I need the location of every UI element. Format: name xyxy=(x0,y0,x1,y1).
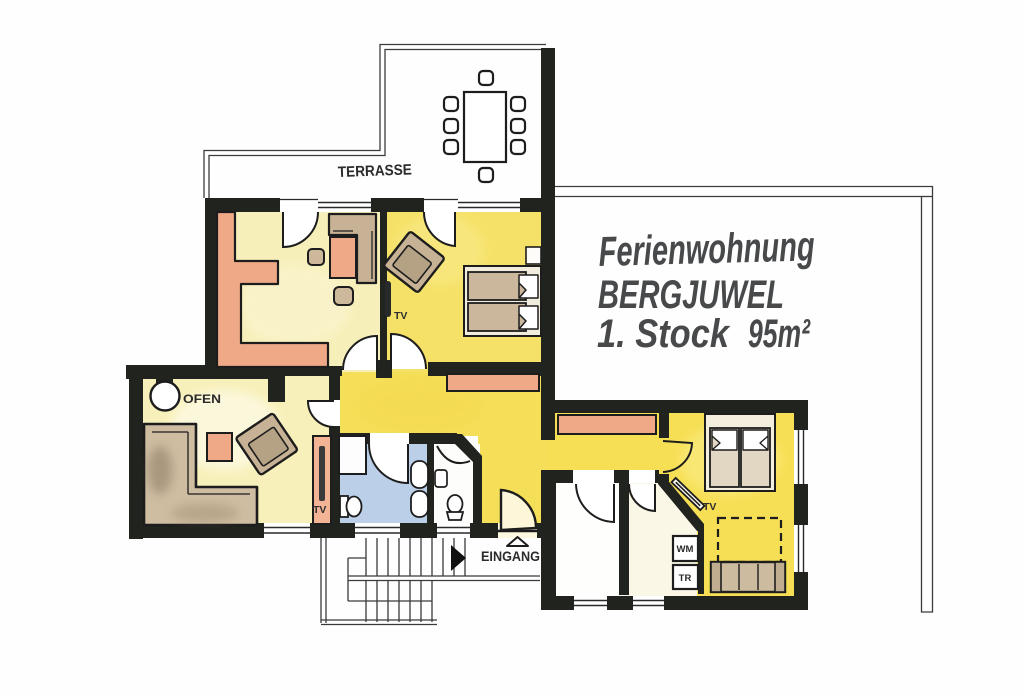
svg-text:EINGANG: EINGANG xyxy=(481,549,540,564)
svg-text:OFEN: OFEN xyxy=(183,394,221,406)
svg-text:95m²: 95m² xyxy=(748,312,811,356)
svg-text:TERRASSE: TERRASSE xyxy=(338,161,413,181)
svg-text:TR: TR xyxy=(679,573,692,584)
svg-text:1. Stock: 1. Stock xyxy=(597,312,731,356)
svg-text:Ferienwohnung: Ferienwohnung xyxy=(598,222,815,275)
svg-text:TV: TV xyxy=(394,310,407,322)
svg-text:BERGJUWEL: BERGJUWEL xyxy=(598,273,784,317)
svg-text:TV: TV xyxy=(313,504,326,516)
svg-text:TV: TV xyxy=(703,501,716,513)
svg-text:WM: WM xyxy=(677,544,694,555)
